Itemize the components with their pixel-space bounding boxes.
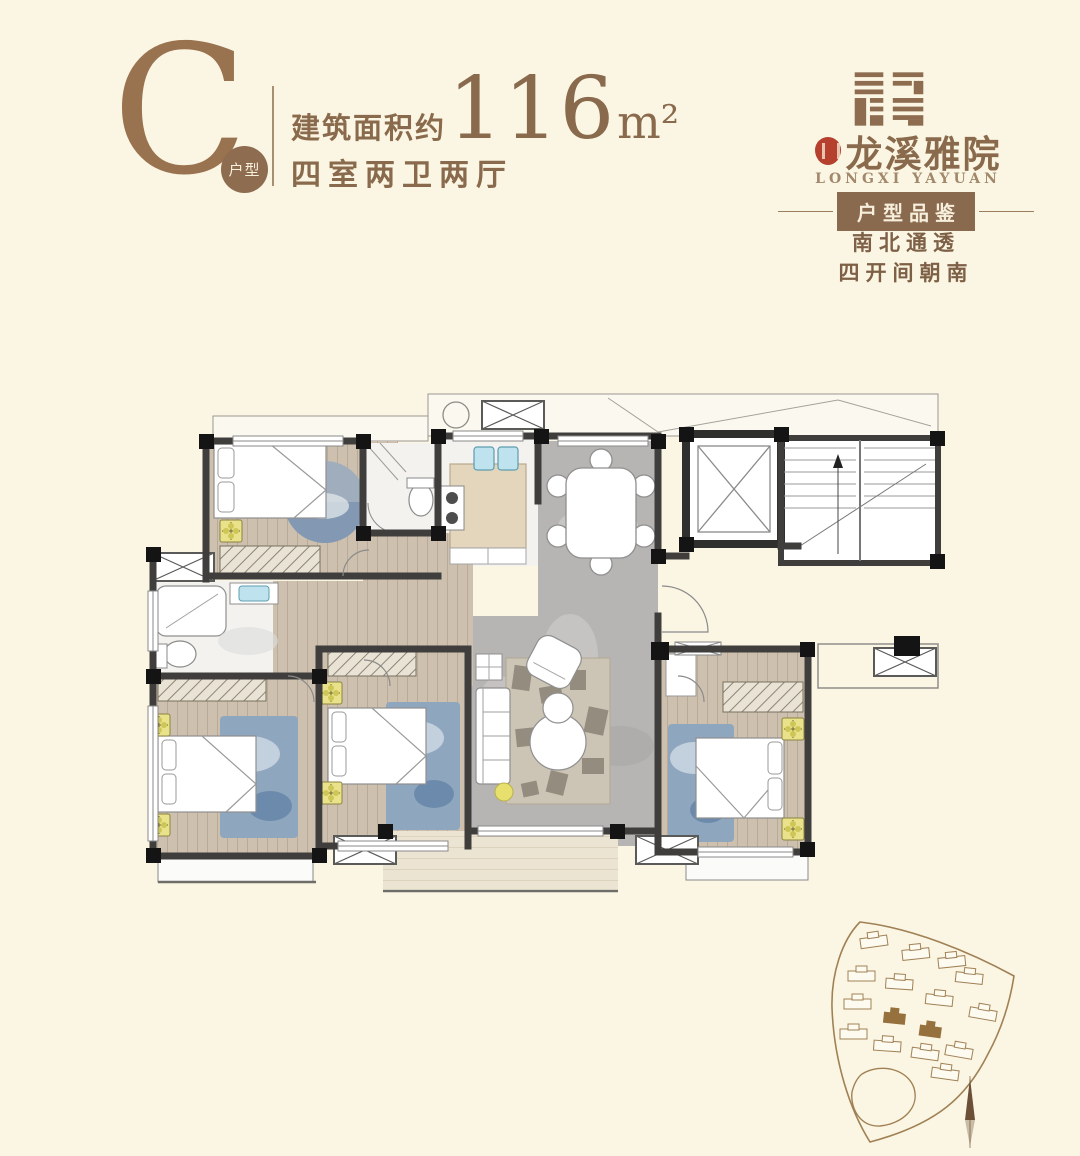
pond [852, 1068, 915, 1126]
brand-name-row: 龙溪雅院 [788, 124, 1028, 178]
badge-line-left [778, 211, 833, 212]
area-value: 116 [448, 66, 615, 152]
area-prefix: 建筑面积约 [291, 105, 446, 147]
brand-latin-name: LONGXI YAYUAN [788, 171, 1028, 187]
dining-table [566, 468, 636, 558]
bathtub-icon [156, 586, 226, 636]
area-line: 建筑面积约 116 m² [291, 66, 679, 152]
area-unit: m² [617, 95, 679, 149]
toilet-icon [409, 484, 433, 516]
site-plan [820, 912, 1025, 1156]
unit-type-badge-label: 户型 [228, 159, 260, 180]
header-divider [272, 86, 274, 186]
bay-window-sw [158, 856, 313, 882]
cabinet [666, 654, 696, 696]
sink-icon [474, 447, 494, 470]
room-layout-text: 四室两卫两厅 [291, 150, 513, 194]
selling-point-south-facing: 四开间朝南 [778, 258, 1034, 288]
unit-type-badge: 户型 [221, 146, 268, 193]
buildings [840, 930, 998, 1081]
balcony-floor [383, 831, 618, 889]
highlighted-building [919, 1020, 943, 1039]
floor-plan-drawing [138, 386, 962, 938]
brand-logo-icon [849, 72, 929, 126]
brand-name: 龙溪雅院 [846, 124, 1002, 178]
section-badge-row: 户型品鉴 [778, 192, 1034, 231]
sink-icon [498, 447, 518, 470]
wardrobe [220, 546, 320, 576]
kitchen [440, 447, 526, 564]
flyer-canvas: C 户型 建筑面积约 116 m² 四室两卫两厅 龙溪雅院 LONGXI YAY… [0, 0, 1080, 1156]
selling-points: 南北通透 四开间朝南 [778, 228, 1034, 289]
floor-lamp-icon [495, 783, 513, 801]
highlighted-building [883, 1007, 907, 1025]
sink-icon [239, 586, 269, 601]
badge-line-right [979, 211, 1034, 212]
toilet-icon [164, 641, 196, 667]
coffee-table-small [543, 693, 573, 723]
section-badge: 户型品鉴 [837, 192, 975, 231]
wardrobe [723, 682, 803, 712]
brand-seal-icon [815, 137, 841, 165]
entry-door-arc [662, 586, 708, 632]
selling-point-north-south: 南北通透 [778, 228, 1034, 258]
